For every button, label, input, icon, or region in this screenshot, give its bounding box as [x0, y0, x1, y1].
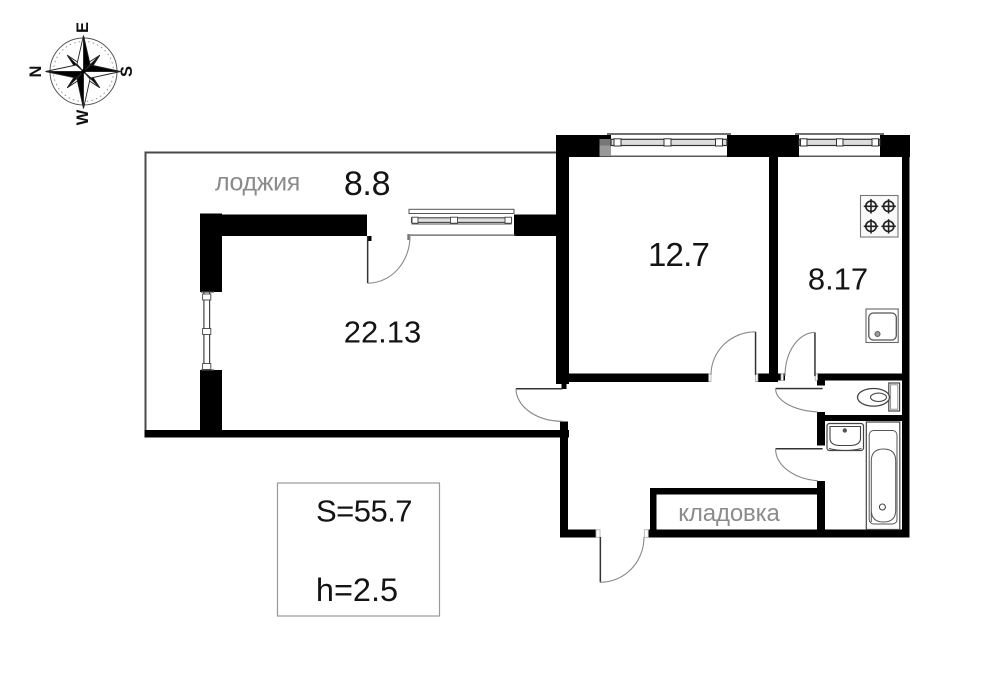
svg-text:кладовка: кладовка [678, 500, 780, 527]
svg-text:N: N [27, 66, 45, 78]
svg-text:h=2.5: h=2.5 [316, 572, 398, 608]
svg-text:лоджия: лоджия [215, 169, 300, 197]
svg-text:S: S [118, 66, 136, 77]
svg-text:22.13: 22.13 [344, 315, 422, 350]
svg-text:S=55.7: S=55.7 [316, 494, 412, 529]
svg-text:12.7: 12.7 [648, 236, 709, 273]
svg-text:8.17: 8.17 [808, 262, 868, 297]
svg-text:E: E [74, 22, 92, 33]
svg-text:W: W [74, 109, 92, 125]
svg-text:8.8: 8.8 [344, 165, 390, 203]
